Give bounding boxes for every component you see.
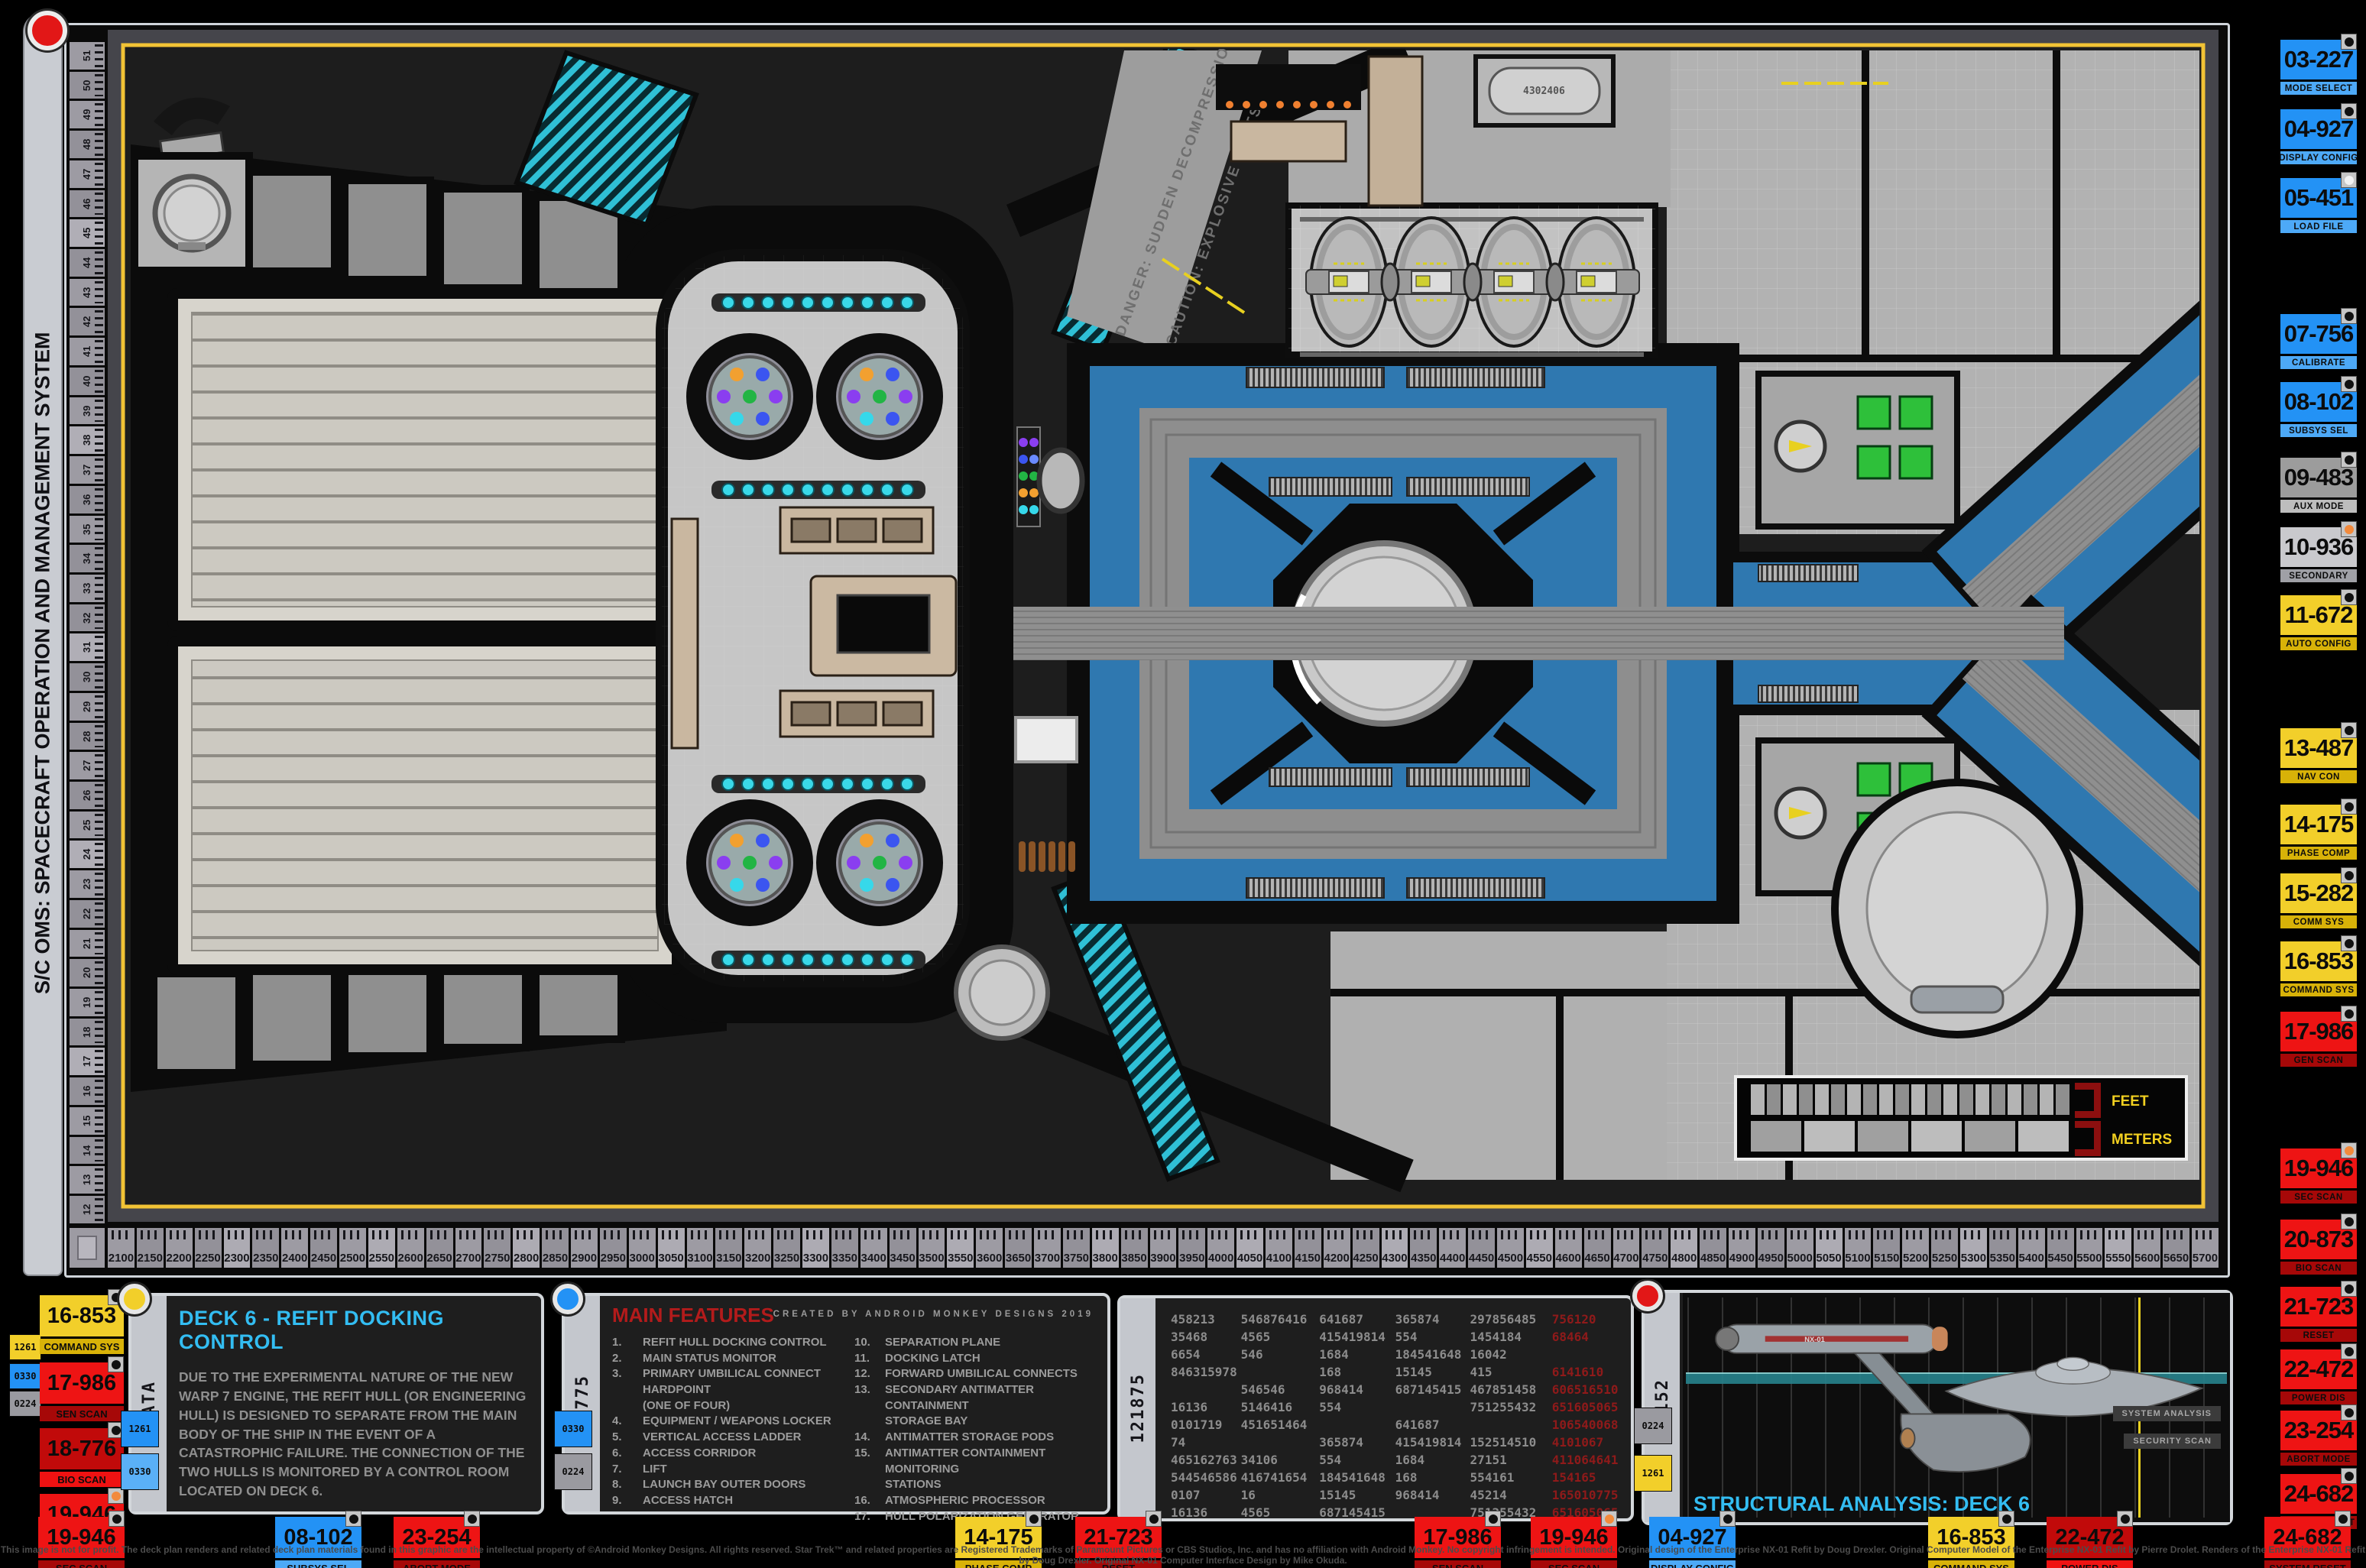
ruler-mark-3350: 3350 (831, 1228, 858, 1268)
ruler-mark-2350: 2350 (252, 1228, 279, 1268)
button-21-723[interactable]: 21-723RESET (2280, 1287, 2357, 1342)
ruler-mark-5000: 5000 (1787, 1228, 1813, 1268)
button-indicator (1998, 1511, 2014, 1527)
ruler-mark-4800: 4800 (1671, 1228, 1697, 1268)
ruler-mark-3450: 3450 (890, 1228, 916, 1268)
button-09-483[interactable]: 09-483AUX MODE (2280, 458, 2357, 513)
nacelle-pylon (1855, 1353, 1933, 1414)
ruler-mark-15: 15 (70, 1107, 105, 1135)
system-analysis-tag[interactable]: SYSTEM ANALYSIS (2113, 1406, 2222, 1421)
ruler-mark-5350: 5350 (1989, 1228, 2016, 1268)
ruler-mark-4850: 4850 (1700, 1228, 1726, 1268)
button-indicator (2341, 722, 2357, 738)
feature-item: 14.ANTIMATTER STORAGE PODS (854, 1430, 1097, 1446)
structural-chip[interactable]: 0224 (1634, 1408, 1672, 1444)
ruler-mark-33: 33 (70, 575, 105, 602)
ruler-mark-4550: 4550 (1526, 1228, 1553, 1268)
ruler-mark-3600: 3600 (976, 1228, 1003, 1268)
ruler-mark-17: 17 (70, 1048, 105, 1075)
feature-item: 10.SEPARATION PLANE (854, 1335, 1097, 1351)
ruler-mark-4100: 4100 (1266, 1228, 1292, 1268)
button-indicator (2341, 1142, 2357, 1158)
ruler-mark-4950: 4950 (1758, 1228, 1784, 1268)
button-19-946[interactable]: 19-946SEC SCAN (2280, 1148, 2357, 1204)
ruler-mark-4200: 4200 (1324, 1228, 1350, 1268)
ruler-mark-3150: 3150 (715, 1228, 742, 1268)
button-indicator (2341, 172, 2357, 188)
ruler-mark-3300: 3300 (802, 1228, 829, 1268)
numbers-panel-tab[interactable]: 121875 (1120, 1298, 1158, 1518)
ruler-mark-2900: 2900 (571, 1228, 598, 1268)
meters-label: METERS (2112, 1132, 2172, 1148)
features-chip[interactable]: 0224 (554, 1453, 592, 1490)
ruler-mark-4500: 4500 (1497, 1228, 1524, 1268)
button-indicator (2341, 376, 2357, 392)
ruler-mark-2800: 2800 (513, 1228, 540, 1268)
ruler-mark-5150: 5150 (1873, 1228, 1900, 1268)
button-14-175[interactable]: 14-175PHASE COMP (2280, 805, 2357, 860)
ruler-mark-3700: 3700 (1034, 1228, 1061, 1268)
ruler-mark-41: 41 (70, 338, 105, 365)
button-indicator (2117, 1511, 2133, 1527)
ruler-mark-40: 40 (70, 368, 105, 395)
ruler-mark-5100: 5100 (1845, 1228, 1872, 1268)
button-indicator (345, 1511, 361, 1527)
data-panel: DATA 1261 0330 DECK 6 - REFIT DOCKING CO… (128, 1293, 544, 1515)
ruler-mark-25: 25 (70, 812, 105, 839)
engineering-hull-side (1901, 1414, 2030, 1472)
ruler-mark-46: 46 (70, 190, 105, 218)
ruler-mark-5200: 5200 (1902, 1228, 1929, 1268)
ruler-mark-32: 32 (70, 604, 105, 632)
feature-item: 5.VERTICAL ACCESS LADDER (612, 1430, 854, 1446)
cylinder-label: 4302406 (1523, 86, 1565, 97)
button-10-936[interactable]: 10-936SECONDARY (2280, 527, 2357, 582)
button-indicator (2341, 867, 2357, 883)
telemetry-column: 641687 415419814 1684 168 968414 554 365… (1319, 1310, 1395, 1512)
features-list-right: 10.SEPARATION PLANE11.DOCKING LATCH12.FO… (854, 1335, 1097, 1524)
button-16-853[interactable]: 16-853COMMAND SYS (40, 1295, 124, 1354)
ruler-mark-4350: 4350 (1410, 1228, 1437, 1268)
button-indicator (108, 1488, 124, 1504)
ruler-mark-39: 39 (70, 397, 105, 425)
ruler-mark-43: 43 (70, 279, 105, 306)
panel-indicator-light (1632, 1281, 1663, 1311)
ruler-mark-3500: 3500 (919, 1228, 945, 1268)
button-03-227[interactable]: 03-227MODE SELECT (2280, 40, 2357, 95)
ruler-mark-4450: 4450 (1468, 1228, 1495, 1268)
features-list-left: 1.REFIT HULL DOCKING CONTROL2.MAIN STATU… (612, 1335, 854, 1524)
ruler-mark-49: 49 (70, 101, 105, 128)
ruler-mark-50: 50 (70, 72, 105, 99)
button-indicator (109, 1511, 125, 1527)
ruler-mark-13: 13 (70, 1166, 105, 1194)
screen: S/C OMS: SPACECRAFT OPERATION AND MANAGE… (0, 0, 2366, 1568)
ruler-mark-2550: 2550 (368, 1228, 395, 1268)
ruler-mark-21: 21 (70, 930, 105, 957)
telemetry-column: 458213 35468 6654 846315978 16136 010171… (1171, 1310, 1241, 1512)
ruler-mark-16: 16 (70, 1077, 105, 1105)
button-23-254[interactable]: 23-254ABORT MODE (2280, 1411, 2357, 1466)
feature-item: 11.DOCKING LATCH (854, 1351, 1097, 1367)
ruler-mark-12: 12 (70, 1196, 105, 1223)
ruler-mark-20: 20 (70, 959, 105, 986)
button-18-776[interactable]: 18-776BIO SCAN (40, 1428, 124, 1487)
button-indicator (1601, 1511, 1617, 1527)
deflector-dish (1901, 1428, 1915, 1448)
feature-item: 7.LIFT (612, 1462, 854, 1478)
ruler-mark-4250: 4250 (1353, 1228, 1379, 1268)
ruler-mark-2200: 2200 (166, 1228, 193, 1268)
deck-description: DUE TO THE EXPERIMENTAL NATURE OF THE NE… (179, 1368, 529, 1501)
ruler-mark-51: 51 (70, 42, 105, 70)
ruler-mark-5600: 5600 (2134, 1228, 2160, 1268)
button-indicator (2341, 103, 2357, 119)
ruler-mark-2300: 2300 (224, 1228, 251, 1268)
ruler-mark-3000: 3000 (629, 1228, 656, 1268)
button-indicator (2341, 935, 2357, 951)
ruler-mark-26: 26 (70, 782, 105, 809)
button-15-282[interactable]: 15-282COMM SYS (2280, 873, 2357, 928)
ruler-mark-3800: 3800 (1092, 1228, 1119, 1268)
telemetry-column: 546876416 4565 546 546546 5146416 451651… (1241, 1310, 1320, 1512)
ruler-mark-4000: 4000 (1207, 1228, 1234, 1268)
button-22-472[interactable]: 22-472POWER DIS (2280, 1349, 2357, 1404)
button-20-873[interactable]: 20-873BIO SCAN (2280, 1220, 2357, 1275)
ruler-mark-3850: 3850 (1121, 1228, 1148, 1268)
button-indicator (2341, 521, 2357, 537)
hull-polarization-generator-room (1835, 782, 2079, 1035)
ruler-mark-5550: 5550 (2105, 1228, 2131, 1268)
button-indicator (2335, 1511, 2351, 1527)
ruler-mark-36: 36 (70, 486, 105, 513)
access-hatch-room (135, 156, 249, 271)
button-indicator (2341, 589, 2357, 605)
ruler-mark-18: 18 (70, 1019, 105, 1046)
ruler-mark-38: 38 (70, 426, 105, 454)
refit-docking-control-room (662, 255, 964, 981)
ruler-mark-5400: 5400 (2018, 1228, 2045, 1268)
ruler-mark-34: 34 (70, 545, 105, 572)
ruler-mark-28: 28 (70, 723, 105, 750)
feature-item: 4.EQUIPMENT / WEAPONS LOCKER (612, 1414, 854, 1430)
button-indicator (2341, 452, 2357, 468)
button-16-853[interactable]: 16-853COMMAND SYS (2280, 941, 2357, 996)
ruler-mark-4650: 4650 (1584, 1228, 1611, 1268)
ruler-mark-2750: 2750 (484, 1228, 510, 1268)
features-chip[interactable]: 0330 (554, 1411, 592, 1447)
ruler-mark-2400: 2400 (281, 1228, 308, 1268)
button-indicator (2341, 34, 2357, 50)
side-chip-0224[interactable]: 0224 (9, 1391, 41, 1417)
button-17-986[interactable]: 17-986SEN SCAN (40, 1362, 124, 1421)
system-title: S/C OMS: SPACECRAFT OPERATION AND MANAGE… (24, 60, 61, 1267)
button-indicator (108, 1356, 124, 1372)
ruler-mark-27: 27 (70, 752, 105, 779)
feature-item: STORAGE BAY (854, 1414, 1097, 1430)
ruler-mark-5250: 5250 (1931, 1228, 1958, 1268)
ruler-mark-3650: 3650 (1005, 1228, 1032, 1268)
button-11-672[interactable]: 11-672AUTO CONFIG (2280, 595, 2357, 650)
ruler-mark-3550: 3550 (947, 1228, 974, 1268)
ruler-mark-2600: 2600 (397, 1228, 424, 1268)
left-system-bar: S/C OMS: SPACECRAFT OPERATION AND MANAGE… (23, 12, 63, 1276)
ruler-mark-47: 47 (70, 160, 105, 188)
telemetry-column: 297856485 1454184 16042 415 467851458 75… (1470, 1310, 1552, 1512)
ruler-mark-3900: 3900 (1150, 1228, 1177, 1268)
vertical-ruler: 5150494847464544434241403938373635343332… (70, 42, 105, 1223)
ruler-mark-4750: 4750 (1642, 1228, 1668, 1268)
ruler-mark-4700: 4700 (1613, 1228, 1640, 1268)
button-indicator (2341, 1213, 2357, 1229)
button-indicator (2341, 1468, 2357, 1484)
button-07-756[interactable]: 07-756CALIBRATE (2280, 314, 2357, 369)
button-08-102[interactable]: 08-102SUBSYS SEL (2280, 382, 2357, 437)
copyright-footer: This image is not for profit. The deck p… (0, 1544, 2366, 1566)
main-features-panel: 10775 0330 0224 MAIN FEATURES CREATED BY… (562, 1293, 1110, 1515)
ruler-mark-4600: 4600 (1555, 1228, 1582, 1268)
side-chip-1261[interactable]: 1261 (9, 1334, 41, 1360)
data-chip[interactable]: 1261 (121, 1411, 159, 1447)
ruler-mark-2700: 2700 (455, 1228, 482, 1268)
feature-item: 1.REFIT HULL DOCKING CONTROL (612, 1335, 854, 1351)
credit-text: CREATED BY ANDROID MONKEY DESIGNS 2019 (773, 1310, 1094, 1319)
deck-title: DECK 6 - REFIT DOCKING CONTROL (179, 1307, 529, 1354)
ruler-mark-22: 22 (70, 900, 105, 928)
ruler-mark-3250: 3250 (773, 1228, 800, 1268)
ruler-mark-24: 24 (70, 841, 105, 868)
ruler-mark-14: 14 (70, 1137, 105, 1165)
data-chip[interactable]: 0330 (121, 1453, 159, 1490)
ruler-mark-2100: 2100 (108, 1228, 135, 1268)
ruler-mark-31: 31 (70, 633, 105, 661)
deck-plan: DANGER: SUDDEN DECOMPRESSION AREA CAUTIO… (108, 30, 2219, 1222)
feature-item: 16.ATMOSPHERIC PROCESSOR (854, 1493, 1097, 1509)
feature-item: 12.FORWARD UMBILICAL CONNECTS (854, 1366, 1097, 1382)
ruler-mark-3050: 3050 (658, 1228, 685, 1268)
ruler-mark-2500: 2500 (339, 1228, 366, 1268)
ruler-mark-2950: 2950 (600, 1228, 627, 1268)
ruler-mark-2850: 2850 (542, 1228, 569, 1268)
feature-item: 9.ACCESS HATCH (612, 1493, 854, 1509)
button-05-451[interactable]: 05-451LOAD FILE (2280, 178, 2357, 233)
button-indicator (464, 1511, 480, 1527)
feet-label: FEET (2112, 1093, 2149, 1110)
ruler-mark-44: 44 (70, 249, 105, 277)
ship-side-view: NX-01 (1683, 1293, 2227, 1508)
ruler-mark-5450: 5450 (2047, 1228, 2074, 1268)
system-indicator-light (28, 11, 67, 50)
structural-title: STRUCTURAL ANALYSIS: DECK 6 (1693, 1492, 2030, 1516)
button-indicator (2341, 1404, 2357, 1421)
feature-item: (ONE OF FOUR) (612, 1398, 854, 1414)
ruler-mark-4900: 4900 (1729, 1228, 1755, 1268)
ruler-mark-37: 37 (70, 456, 105, 484)
ruler-mark-5050: 5050 (1816, 1228, 1843, 1268)
ruler-mark-2450: 2450 (310, 1228, 337, 1268)
ruler-mark-23: 23 (70, 870, 105, 898)
feature-item: 6.ACCESS CORRIDOR (612, 1446, 854, 1462)
ruler-mark-4050: 4050 (1236, 1228, 1263, 1268)
button-indicator (1485, 1511, 1501, 1527)
button-04-927[interactable]: 04-927DISPLAY CONFIG (2280, 109, 2357, 164)
ruler-mark-2650: 2650 (426, 1228, 453, 1268)
ruler-mark-5300: 5300 (1960, 1228, 1987, 1268)
panel-indicator-light (553, 1284, 583, 1314)
feature-item: 3.PRIMARY UMBILICAL CONNECT HARDPOINT (612, 1366, 854, 1398)
button-indicator (2341, 799, 2357, 815)
telemetry-column-alert: 756120 68464 6141610 606516510 651605065… (1552, 1310, 1623, 1512)
feature-item: 8.LAUNCH BAY OUTER DOORS (612, 1477, 854, 1493)
button-indicator (2341, 1343, 2357, 1359)
button-13-487[interactable]: 13-487NAV CON (2280, 728, 2357, 783)
feature-item: 13.SECONDARY ANTIMATTER CONTAINMENT (854, 1382, 1097, 1414)
ruler-mark-2150: 2150 (137, 1228, 164, 1268)
side-chip-0330[interactable]: 0330 (9, 1363, 41, 1389)
ship-registry: NX-01 (1804, 1336, 1825, 1343)
ruler-mark-48: 48 (70, 131, 105, 158)
feature-item: 15.ANTIMATTER CONTAINMENT MONITORING (854, 1446, 1097, 1477)
ruler-mark-4300: 4300 (1382, 1228, 1408, 1268)
scale-bar: FEET METERS (1736, 1077, 2186, 1159)
security-scan-tag[interactable]: SECURITY SCAN (2124, 1434, 2221, 1449)
ruler-mark-19: 19 (70, 989, 105, 1016)
button-indicator (1719, 1511, 1736, 1527)
ruler-mark-3200: 3200 (744, 1228, 771, 1268)
button-indicator (1026, 1511, 1042, 1527)
ruler-mark-3750: 3750 (1063, 1228, 1090, 1268)
main-corridor (1013, 607, 2064, 660)
telemetry-numbers-panel: 121875 458213 35468 6654 846315978 16136… (1117, 1295, 1634, 1521)
ruler-mark-3950: 3950 (1178, 1228, 1205, 1268)
button-indicator (2341, 1006, 2357, 1022)
structural-chip[interactable]: 1261 (1634, 1455, 1672, 1492)
ruler-mark-29: 29 (70, 693, 105, 721)
telemetry-column: 365874 554 184541648 15145 687145415 641… (1395, 1310, 1470, 1512)
ruler-mark-45: 45 (70, 219, 105, 247)
feature-item: STATIONS (854, 1477, 1097, 1493)
ruler-mark-5650: 5650 (2163, 1228, 2189, 1268)
ruler-mark-3100: 3100 (687, 1228, 714, 1268)
panel-indicator-light (119, 1284, 150, 1314)
horizontal-ruler: 2100215022002250230023502400245025002550… (108, 1228, 2219, 1268)
ruler-mark-42: 42 (70, 308, 105, 335)
button-17-986[interactable]: 17-986GEN SCAN (2280, 1012, 2357, 1067)
button-indicator (1146, 1511, 1162, 1527)
button-indicator (2341, 1281, 2357, 1297)
structural-analysis-panel: 81152 0224 1261 NX-01 SYSTEM ANALYSIS SE… (1642, 1290, 2233, 1525)
ruler-mark-5700: 5700 (2192, 1228, 2219, 1268)
ruler-mark-3400: 3400 (861, 1228, 887, 1268)
button-indicator (2341, 308, 2357, 324)
deck-plan-panel: 5150494847464544434241403938373635343332… (64, 23, 2230, 1278)
ruler-corner (70, 1228, 105, 1268)
ruler-mark-2250: 2250 (195, 1228, 222, 1268)
ruler-mark-30: 30 (70, 663, 105, 691)
ruler-mark-35: 35 (70, 516, 105, 543)
antimatter-storage-bay (1288, 206, 1655, 355)
ruler-mark-4400: 4400 (1439, 1228, 1466, 1268)
ruler-mark-5500: 5500 (2076, 1228, 2103, 1268)
ruler-mark-4150: 4150 (1295, 1228, 1321, 1268)
feature-item: 2.MAIN STATUS MONITOR (612, 1351, 854, 1367)
